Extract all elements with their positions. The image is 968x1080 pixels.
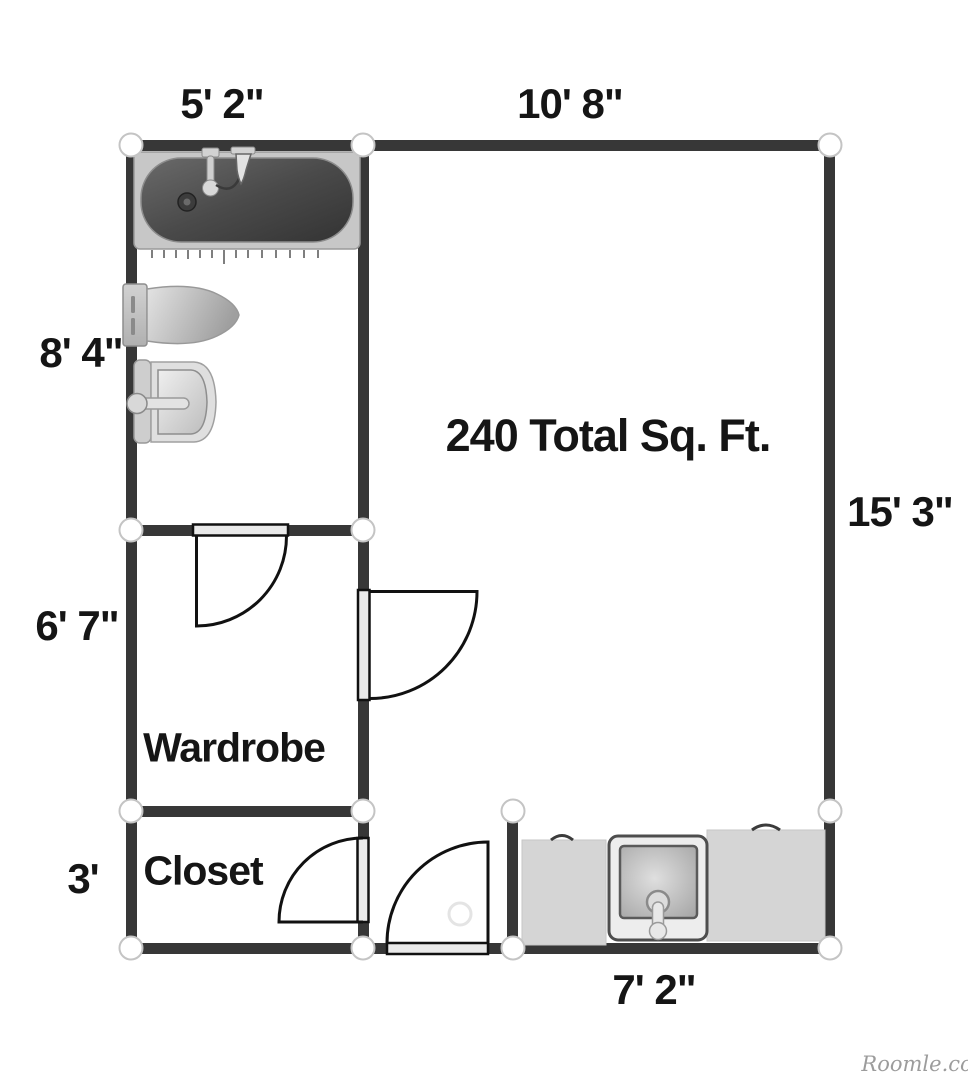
- room-label-closet: Closet: [143, 848, 262, 895]
- wall-node[interactable]: [352, 937, 375, 960]
- door-swing-arc: [387, 842, 488, 943]
- dimension-wardrobe-height: 6' 7": [35, 602, 118, 650]
- total-area-label: 240 Total Sq. Ft.: [446, 410, 771, 462]
- door-swing-arc: [370, 592, 477, 699]
- dimension-main-room-width: 10' 8": [517, 80, 623, 128]
- door-slab: [358, 590, 370, 700]
- door-swing-arc: [279, 838, 363, 922]
- door-closet[interactable]: [279, 838, 369, 922]
- entry-door-knob: [449, 903, 471, 925]
- kitchen-counter-right[interactable]: [707, 825, 825, 941]
- dimension-main-room-height: 15' 3": [847, 488, 953, 536]
- bathtub-faucet-plate: [231, 147, 255, 154]
- wall-node[interactable]: [352, 800, 375, 823]
- counter-cabinet: [707, 830, 825, 941]
- door-entry[interactable]: [387, 842, 488, 954]
- door-bathroom[interactable]: [193, 525, 288, 627]
- toilet-tank: [123, 284, 147, 346]
- counter-cabinet: [522, 840, 606, 945]
- kitchen-counter-left[interactable]: [522, 836, 606, 946]
- toilet[interactable]: [123, 284, 239, 346]
- dimension-kitchen-width: 7' 2": [612, 966, 695, 1014]
- roomle-watermark: Roomle.com: [861, 1052, 968, 1076]
- wall-node[interactable]: [819, 937, 842, 960]
- door-main-room[interactable]: [358, 590, 477, 700]
- room-label-wardrobe: Wardrobe: [143, 725, 325, 772]
- wall-node[interactable]: [502, 800, 525, 823]
- wall-node[interactable]: [120, 937, 143, 960]
- door-slab: [193, 525, 288, 536]
- wall-closet-divider[interactable]: [126, 806, 369, 817]
- wall-node[interactable]: [120, 134, 143, 157]
- door-swing-arc: [197, 535, 287, 626]
- dimension-bathroom-width: 5' 2": [180, 80, 263, 128]
- door-slab: [358, 838, 369, 922]
- wall-node[interactable]: [120, 800, 143, 823]
- wall-kitchen-stub[interactable]: [507, 806, 518, 954]
- toilet-flush-slot: [131, 318, 135, 335]
- dimension-bathroom-height: 8' 4": [39, 329, 122, 377]
- cabinet-handle: [551, 836, 573, 841]
- wall-node[interactable]: [819, 134, 842, 157]
- wall-node[interactable]: [352, 134, 375, 157]
- kitchen-sink[interactable]: [609, 836, 707, 940]
- cabinet-handle: [752, 825, 780, 830]
- wall-left[interactable]: [126, 140, 137, 954]
- wall-node[interactable]: [352, 519, 375, 542]
- wall-node[interactable]: [819, 800, 842, 823]
- floorplan-graphics: [0, 0, 968, 1080]
- toilet-bowl: [147, 286, 239, 343]
- bathtub-drain-center: [184, 199, 191, 206]
- bathtub-rail-ticks: [152, 250, 318, 264]
- floorplan-canvas: 5' 2" 10' 8" 8' 4" 15' 3" 6' 7" 3' 7' 2"…: [0, 0, 968, 1080]
- wall-node[interactable]: [502, 937, 525, 960]
- door-slab: [387, 943, 488, 954]
- sink-faucet-knob: [127, 394, 147, 414]
- wall-node[interactable]: [120, 519, 143, 542]
- bathtub-basin: [141, 158, 353, 242]
- bathtub-shower-rod: [207, 156, 214, 183]
- wall-interior-vertical[interactable]: [358, 140, 369, 954]
- bathtub[interactable]: [134, 147, 360, 264]
- dimension-closet-height: 3': [67, 855, 98, 903]
- wall-right[interactable]: [824, 140, 835, 954]
- kitchen-faucet-tip: [650, 923, 667, 940]
- toilet-flush-slot: [131, 296, 135, 313]
- bathroom-sink[interactable]: [127, 360, 216, 443]
- bathtub-shower-head: [203, 180, 219, 196]
